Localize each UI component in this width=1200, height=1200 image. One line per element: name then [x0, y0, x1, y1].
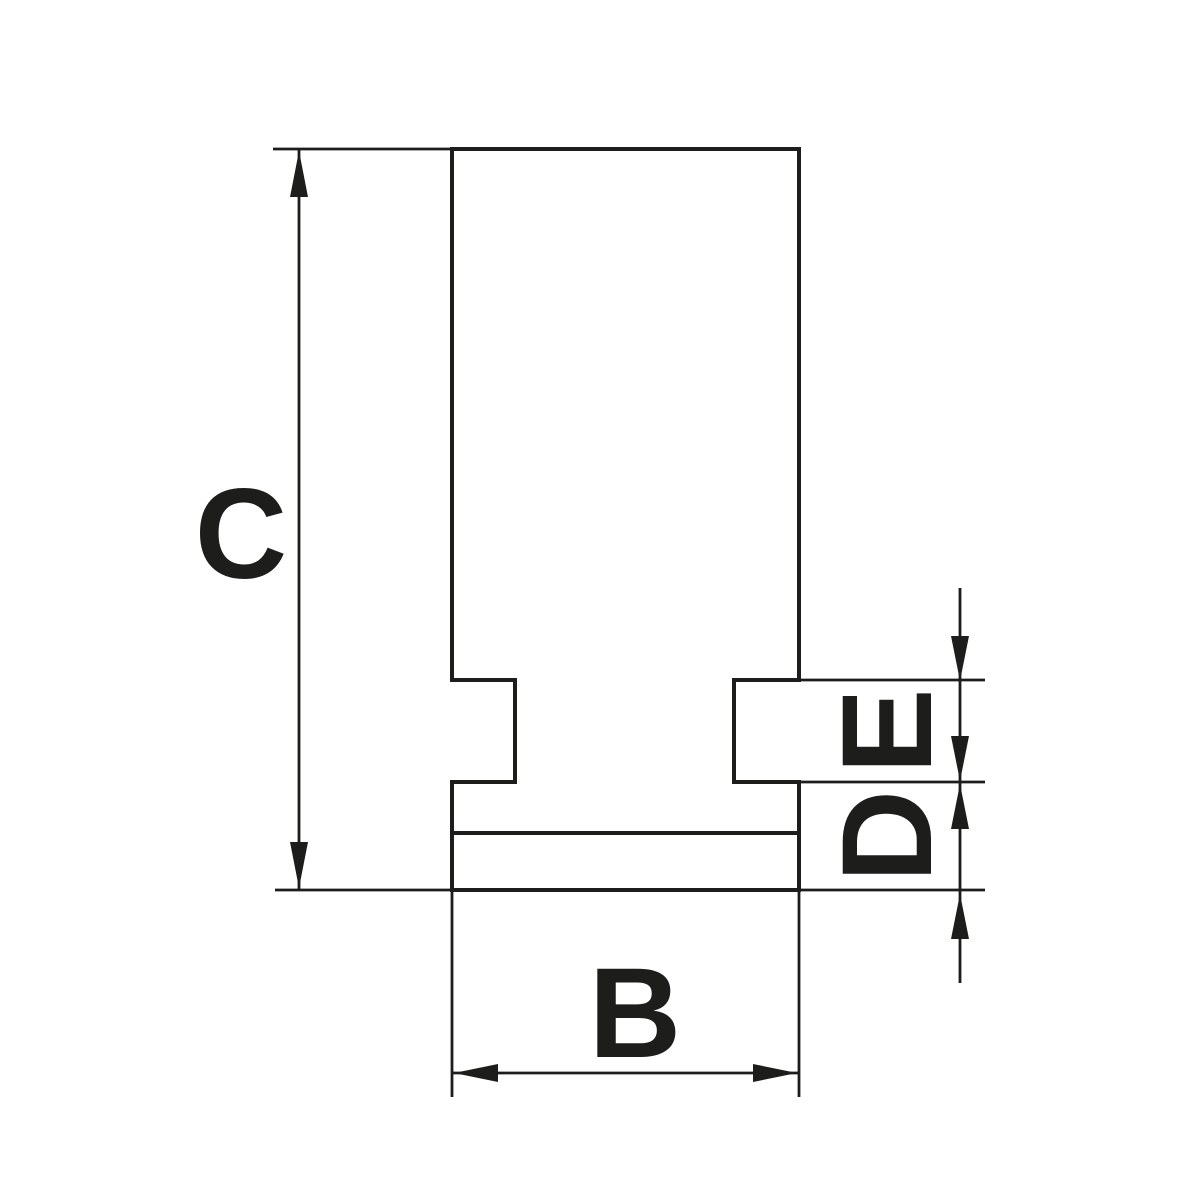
dimension-height-c: C: [195, 150, 308, 889]
part-profile: [452, 149, 799, 890]
part-outline: [452, 149, 799, 890]
arrowhead-b-right: [753, 1064, 797, 1082]
dimension-stack-e-d: E D: [816, 588, 969, 983]
dimension-label-c: C: [195, 463, 287, 606]
drawing-canvas: C B E D: [0, 0, 1200, 1200]
technical-drawing: C B E D: [0, 0, 1200, 1200]
dimension-label-b: B: [589, 942, 681, 1085]
dimension-width-b: B: [452, 942, 799, 1085]
arrowhead-c-top: [290, 151, 308, 197]
arrowhead-b-left: [454, 1064, 498, 1082]
arrowhead-e-top: [951, 636, 969, 681]
arrowhead-d-bottom: [951, 894, 969, 939]
dimension-label-d: D: [816, 790, 959, 882]
arrowhead-c-bottom: [290, 842, 308, 888]
dimension-label-e: E: [816, 688, 959, 773]
